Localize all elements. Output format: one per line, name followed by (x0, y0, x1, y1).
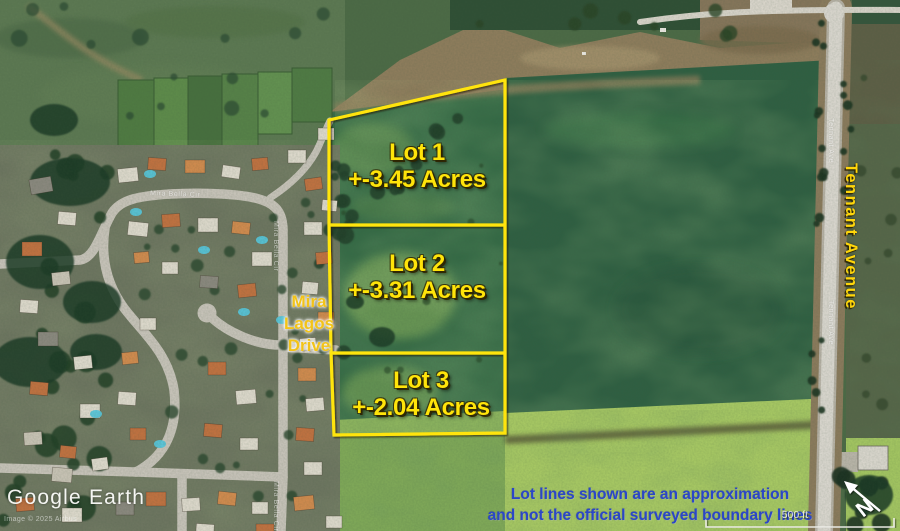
street-label-mira-bella-side: Mira Bella Cir (272, 221, 279, 283)
lot1-acreage: +-3.45 Acres (302, 166, 532, 193)
google-earth-watermark: Google Earth (7, 486, 145, 510)
mira-line3: Drive (264, 335, 354, 357)
lot2-name: Lot 2 (302, 250, 532, 277)
lot1-name: Lot 1 (302, 139, 532, 166)
lot3-name: Lot 3 (306, 367, 536, 394)
mira-lagos-drive-label: Mira Lagos Drive (264, 291, 354, 357)
lot3-label: Lot 3 +-2.04 Acres (306, 367, 536, 421)
scale-label: 500 ft (758, 509, 808, 521)
road-label-tennant-small-bottom: Tennant Ave (827, 300, 834, 345)
mira-line2: Lagos (264, 313, 354, 335)
tennant-avenue-label: Tennant Avenue (841, 163, 860, 313)
mira-line1: Mira (264, 291, 354, 313)
lot3-acreage: +-2.04 Acres (306, 394, 536, 421)
disclaimer-text: Lot lines shown are an approximation and… (420, 484, 880, 526)
disclaimer-line2: and not the official surveyed boundary l… (420, 505, 880, 526)
imagery-credit: Image © 2025 Airbus (4, 516, 77, 523)
road-label-tennant-small-top: Tennant Ave (827, 118, 834, 163)
street-label-mira-bella-bottom: Mira Bella Cir (272, 481, 279, 531)
lot1-label: Lot 1 +-3.45 Acres (302, 139, 532, 193)
disclaimer-line1: Lot lines shown are an approximation (420, 484, 880, 505)
annotated-satellite-image: N Mira Bella Cir Mira Bella Cir Mira Bel… (0, 0, 900, 531)
